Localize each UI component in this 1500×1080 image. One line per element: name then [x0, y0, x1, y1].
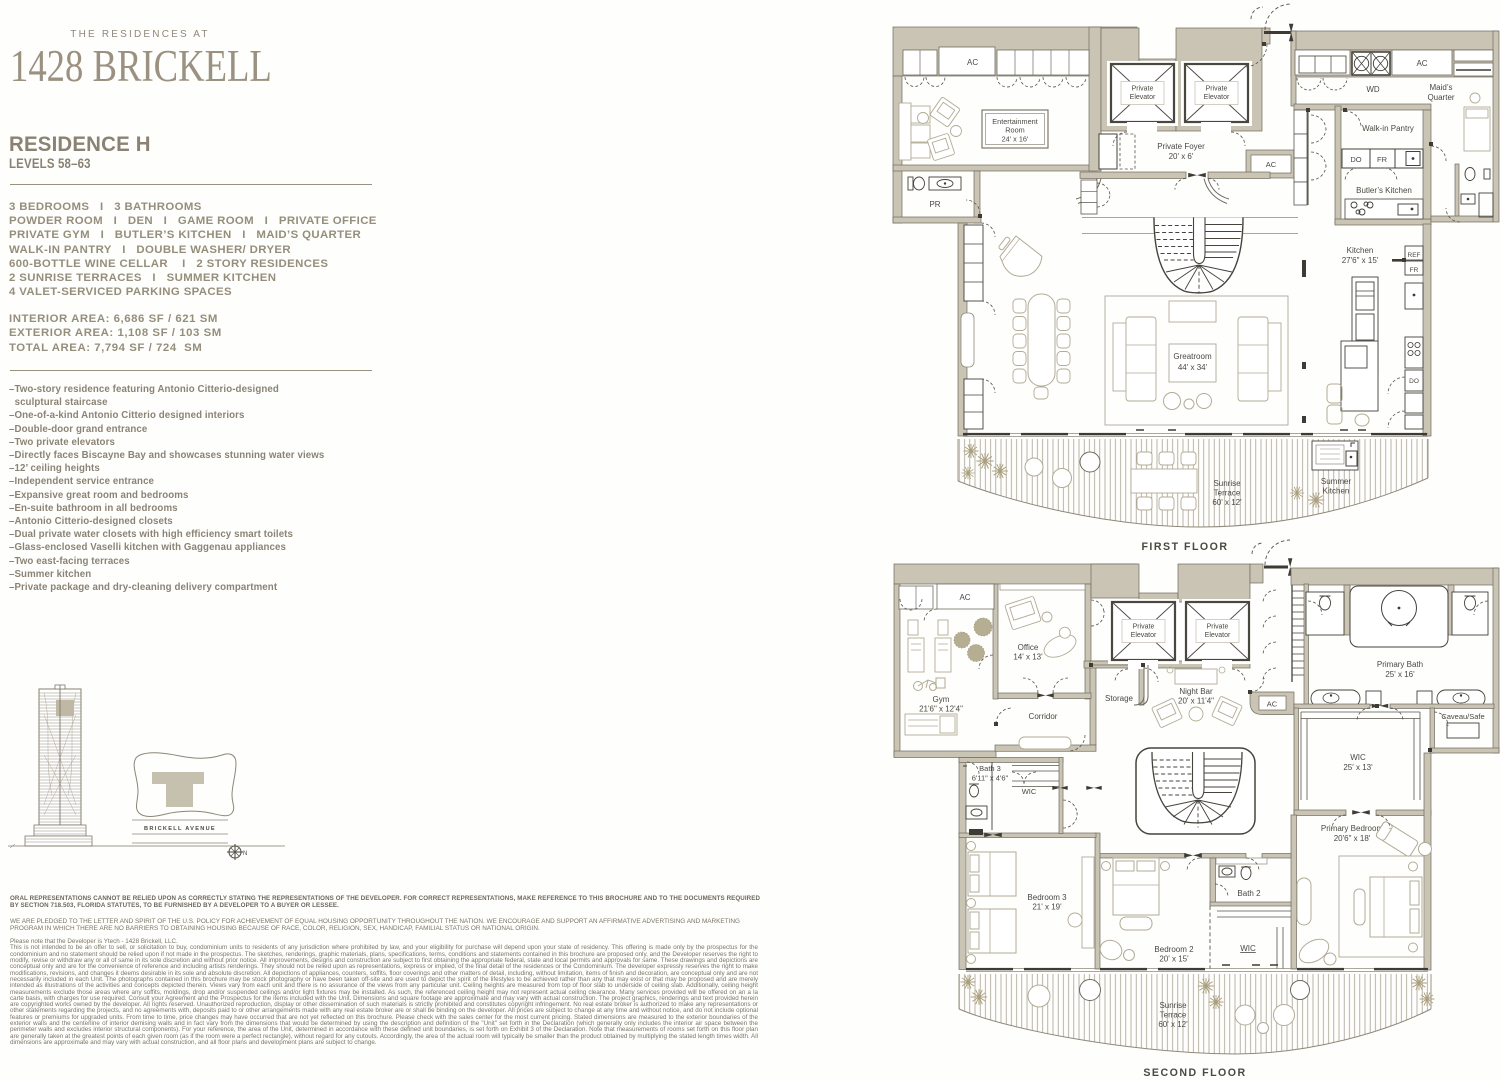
- svg-text:60' x 12': 60' x 12': [1158, 1020, 1188, 1029]
- svg-text:FR: FR: [1377, 155, 1388, 164]
- svg-text:21' x 19': 21' x 19': [1032, 903, 1062, 912]
- svg-text:Night Bar: Night Bar: [1179, 687, 1213, 696]
- svg-text:Greatroom: Greatroom: [1173, 352, 1212, 361]
- svg-text:Terrace: Terrace: [1214, 489, 1241, 498]
- svg-text:20' x 6': 20' x 6': [1169, 152, 1194, 161]
- svg-text:27'6" x 15': 27'6" x 15': [1342, 256, 1379, 265]
- svg-text:REF: REF: [1408, 252, 1421, 259]
- svg-text:AC: AC: [959, 593, 970, 602]
- svg-text:Bath 2: Bath 2: [1237, 889, 1261, 898]
- svg-text:BRICKELL AVENUE: BRICKELL AVENUE: [144, 826, 216, 832]
- svg-text:20' x 15': 20' x 15': [1159, 955, 1189, 964]
- svg-text:Bath 3: Bath 3: [979, 764, 1001, 773]
- svg-text:Primary Bath: Primary Bath: [1377, 660, 1423, 669]
- svg-text:Private Foyer: Private Foyer: [1157, 142, 1205, 151]
- svg-text:6'11" x 4'6": 6'11" x 4'6": [972, 774, 1009, 783]
- svg-text:DO: DO: [1409, 378, 1419, 385]
- svg-text:AC: AC: [1416, 59, 1427, 68]
- svg-text:FR: FR: [1410, 267, 1419, 274]
- svg-text:60' x 12': 60' x 12': [1212, 498, 1242, 507]
- svg-text:SECOND FLOOR: SECOND FLOOR: [1143, 1067, 1246, 1079]
- svg-text:Sunrise: Sunrise: [1213, 479, 1241, 488]
- svg-text:20' x 11'4": 20' x 11'4": [1178, 697, 1214, 706]
- svg-text:Corridor: Corridor: [1029, 712, 1058, 721]
- svg-text:Bedroom 3: Bedroom 3: [1027, 893, 1067, 902]
- svg-text:Bedroom 2: Bedroom 2: [1154, 945, 1194, 954]
- svg-text:Kitchen: Kitchen: [1323, 487, 1350, 496]
- svg-text:PR: PR: [929, 200, 940, 209]
- svg-text:WIC: WIC: [1350, 753, 1366, 762]
- svg-text:DO: DO: [1350, 155, 1361, 164]
- svg-text:Primary Bedroom: Primary Bedroom: [1321, 824, 1384, 833]
- svg-text:WD: WD: [1366, 85, 1380, 94]
- svg-text:20'6" x 18': 20'6" x 18': [1334, 834, 1371, 843]
- svg-text:Maid’s: Maid’s: [1430, 83, 1453, 92]
- svg-text:Sunrise: Sunrise: [1159, 1001, 1187, 1010]
- svg-text:FIRST FLOOR: FIRST FLOOR: [1141, 541, 1228, 553]
- svg-text:Terrace: Terrace: [1160, 1011, 1187, 1020]
- svg-text:Walk-in Pantry: Walk-in Pantry: [1362, 124, 1414, 133]
- svg-text:14' x 13': 14' x 13': [1013, 653, 1043, 662]
- svg-text:WIC: WIC: [1022, 787, 1037, 796]
- svg-text:Storage: Storage: [1105, 694, 1134, 703]
- svg-text:24' x 16': 24' x 16': [1002, 135, 1029, 144]
- svg-text:25' x 13': 25' x 13': [1343, 763, 1373, 772]
- svg-text:Caveau/Safe: Caveau/Safe: [1441, 712, 1484, 721]
- svg-text:Summer: Summer: [1321, 477, 1352, 486]
- svg-text:N: N: [243, 851, 247, 857]
- svg-text:AC: AC: [1266, 160, 1277, 169]
- svg-text:Butler’s Kitchen: Butler’s Kitchen: [1356, 186, 1412, 195]
- svg-text:WIC: WIC: [1240, 944, 1256, 953]
- svg-text:AC: AC: [1267, 700, 1278, 709]
- svg-text:21'6" x 12'4": 21'6" x 12'4": [919, 705, 963, 714]
- svg-text:25' x 16': 25' x 16': [1385, 670, 1415, 679]
- svg-text:Quarter: Quarter: [1427, 93, 1454, 102]
- svg-text:Room: Room: [1005, 126, 1024, 135]
- svg-text:Kitchen: Kitchen: [1347, 246, 1374, 255]
- svg-text:44' x 34': 44' x 34': [1178, 363, 1208, 372]
- svg-text:Office: Office: [1018, 643, 1039, 652]
- svg-text:AC: AC: [967, 58, 978, 67]
- svg-text:Gym: Gym: [933, 695, 950, 704]
